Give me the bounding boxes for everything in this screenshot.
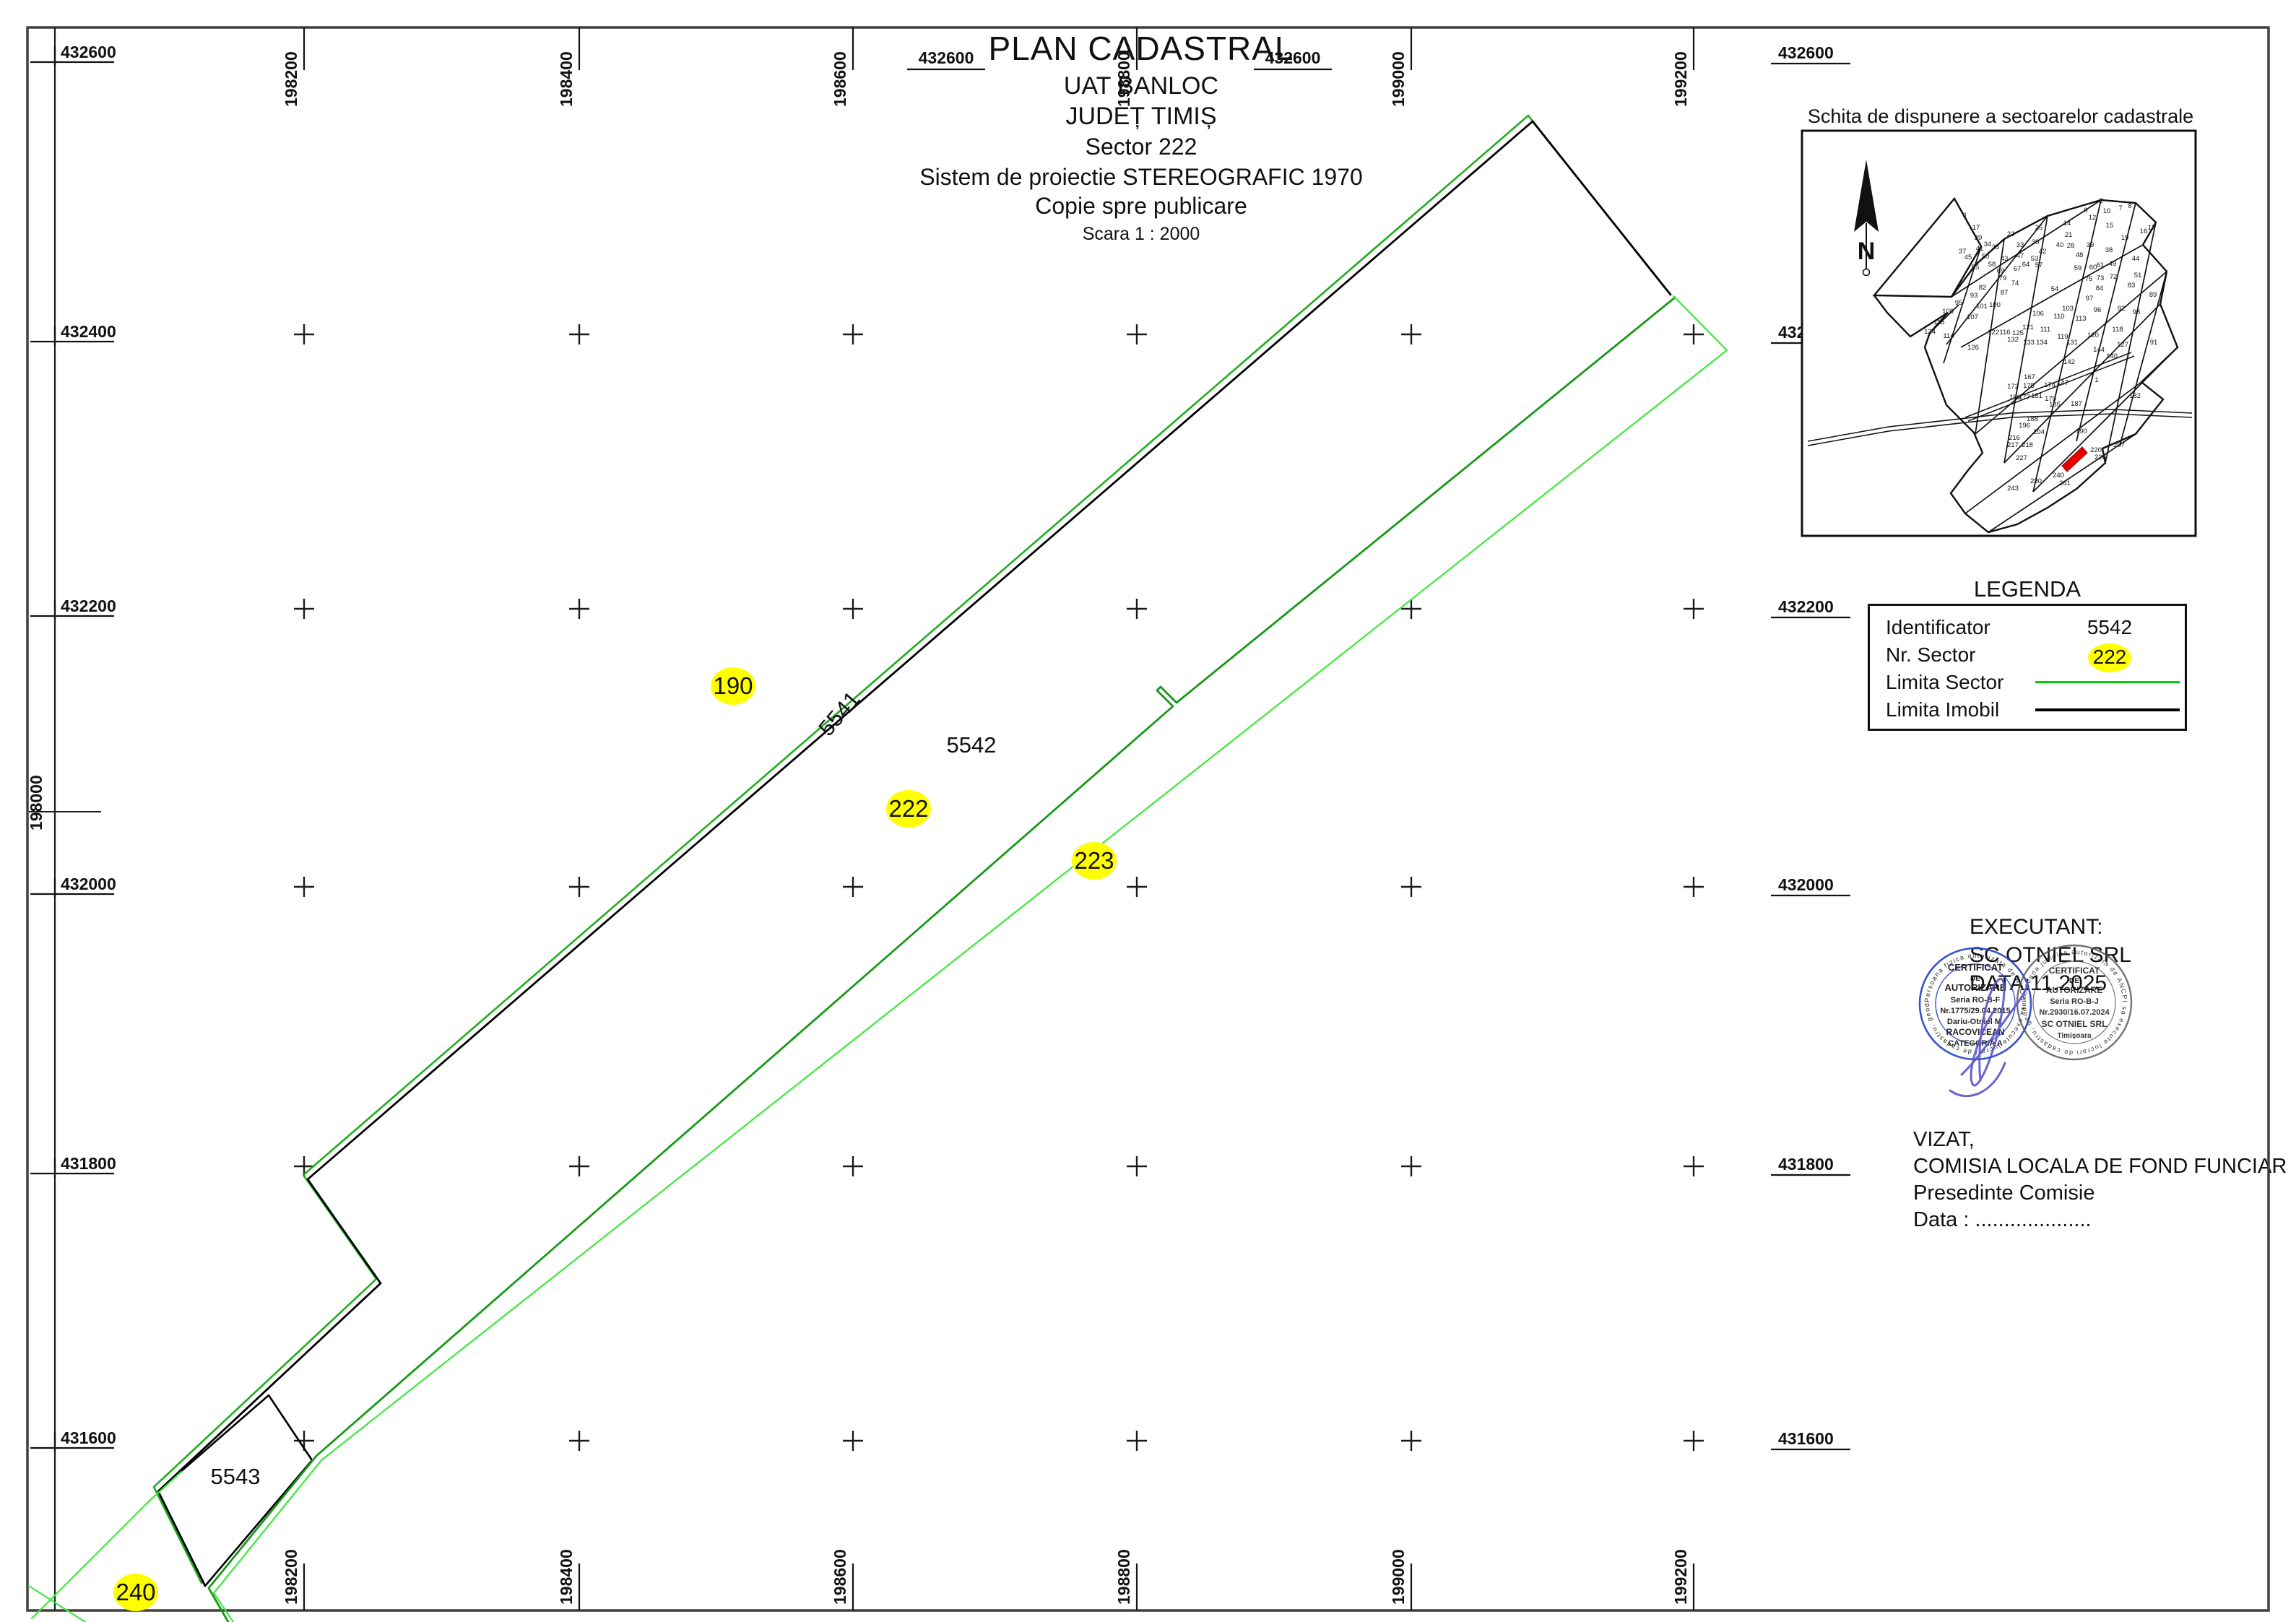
inset-parcel-number: 83 <box>2128 282 2136 290</box>
inset-parcel-number: 33 <box>2016 241 2024 249</box>
inset-parcel-number: 179 <box>2045 395 2056 403</box>
inset-highlight-sector <box>2062 447 2087 472</box>
inset-parcel-number: 216 <box>2009 434 2020 442</box>
stamp-text-line: CATEGORIA A <box>1948 1039 2002 1048</box>
sector-marker-label: 222 <box>888 795 928 822</box>
grid-label-northing-left: 432000 <box>61 875 116 893</box>
inset-parcel-number: 25 <box>2035 224 2043 232</box>
inset-parcel-number: 114 <box>1943 332 1954 340</box>
sector-marker <box>886 790 931 828</box>
inset-parcel-number: 131 <box>2066 339 2078 347</box>
inset-parcel-number: 61 <box>2097 261 2105 269</box>
inset-parcel-number: 108 <box>1942 308 1954 316</box>
sector-limit-se <box>209 298 1675 1622</box>
inset-parcel-number: 243 <box>2007 485 2019 493</box>
inset-parcel-number: 41 <box>1976 245 1984 253</box>
inset-parcel-number: 57 <box>2035 261 2043 269</box>
inset-parcel-number: 37 <box>1959 248 1967 256</box>
vizat-line3: Presedinte Comisie <box>1913 1180 2289 1207</box>
grid-label-easting-top: 198400 <box>557 51 576 107</box>
inset-parcel-number: 95 <box>1955 299 1963 307</box>
inset-parcel-number: 116 <box>1999 329 2010 337</box>
inset-parcel-number: 93 <box>1970 292 1978 300</box>
inset-parcel-number: 82 <box>1979 284 1987 292</box>
grid-label-easting-top: 199200 <box>1671 51 1690 107</box>
stamp-text-line: Timișoara <box>2057 1032 2091 1040</box>
inset-parcel-number: 204 <box>2033 428 2045 436</box>
inset-parcel-number: 98 <box>2133 308 2141 316</box>
legend-row-identificator: Identificator 5542 <box>1870 613 2185 641</box>
inset-parcel-number: 187 <box>2071 400 2082 408</box>
inset-parcel-number: 241 <box>2059 480 2071 487</box>
stamp-text-line: Seria RO-B-J <box>2050 997 2099 1006</box>
grid-label-easting-bottom: 198800 <box>1114 1549 1133 1605</box>
sector-marker <box>1072 842 1117 880</box>
page-title: PLAN CADASTRAL <box>841 30 1441 68</box>
grid-label-northing-right: 432200 <box>1778 597 1834 616</box>
inset-parcel-number: 107 <box>1967 313 1978 321</box>
legend-label: Limita Imobil <box>1886 698 1999 721</box>
inset-parcel-number: 218 <box>2022 441 2033 449</box>
parcel-boundaries <box>29 116 1727 1622</box>
grid-label-northing-left: 432600 <box>61 43 116 61</box>
inset-parcel-number: 55 <box>1972 264 1980 272</box>
vizat-block: VIZAT, COMISIA LOCALA DE FOND FUNCIAR Pr… <box>1913 1127 2289 1233</box>
sector-marker-label: 240 <box>116 1579 155 1605</box>
stamp-text-line: Nr.1775/29.04.2015 <box>1940 1007 2010 1015</box>
inset-parcel-number: 51 <box>2134 272 2142 279</box>
inset-parcel-number: 115 <box>1933 318 1944 326</box>
grid-label-northing-left: 432400 <box>61 322 116 341</box>
grid-label-easting-bottom: 198600 <box>831 1549 849 1605</box>
legend-row-limita-imobil: Limita Imobil <box>1870 695 2185 723</box>
inset-parcel-number: 207 <box>2113 441 2125 449</box>
inset-parcel-number: 177 <box>2019 394 2030 402</box>
title-judet: JUDEȚ TIMIȘ <box>841 103 1441 130</box>
inset-parcel-number: 58 <box>1988 261 1996 269</box>
inset-parcel-number: 48 <box>2076 251 2084 259</box>
inset-parcel-number: 28 <box>2067 242 2075 250</box>
inset-parcel-number: 196 <box>2019 422 2030 430</box>
title-sector: Sector 222 <box>841 134 1441 160</box>
inset-parcel-number: 49 <box>2109 260 2117 268</box>
grid-label-left-rotated: 198000 <box>27 775 46 830</box>
inset-parcel-number: 8 <box>2128 202 2131 210</box>
inset-parcel-number: 121 <box>2022 324 2034 331</box>
inset-parcel-number: 144 <box>2093 346 2105 354</box>
title-projection: Sistem de proiectie STEREOGRAFIC 1970 <box>841 165 1441 191</box>
inset-parcel-number: 227 <box>2016 454 2027 462</box>
grid-label-northing-right: 432600 <box>1778 43 1834 62</box>
inset-parcel-number: 22 <box>2007 230 2015 238</box>
inset-title: Schita de dispunere a sectoarelor cadast… <box>1791 105 2210 150</box>
inset-parcel-number: 140 <box>2106 352 2118 360</box>
inset-parcel-number: 124 <box>1924 328 1936 336</box>
inset-parcel-number: 185 <box>2049 401 2061 409</box>
inset-parcel-number: 91 <box>2150 339 2158 347</box>
stamp-text-line: Dariu-Otniel M. <box>1947 1018 2003 1026</box>
inset-parcel-number: 44 <box>2132 255 2140 263</box>
legend-label: Nr. Sector <box>1886 643 1975 667</box>
inset-parcel-number: 45 <box>1964 253 1972 261</box>
inset-parcel-number: 106 <box>2032 310 2044 318</box>
grid-label-northing-left: 431600 <box>61 1428 116 1447</box>
inset-parcel-number: 125 <box>2012 329 2024 337</box>
grid-label-northing-right: 432400 <box>1778 323 1834 342</box>
inset-parcel-number: 59 <box>2074 264 2082 272</box>
inset-parcel-number: 72 <box>2110 273 2118 281</box>
inset-parcel-number: 142 <box>2063 358 2075 366</box>
inset-parcel-number: 30 <box>2032 238 2040 246</box>
inset-parcel-number: 174 <box>2044 381 2055 389</box>
legend-title: LEGENDA <box>1868 576 2187 602</box>
imobil-limit-nw-low <box>158 1179 381 1586</box>
title-scale: Scara 1 : 2000 <box>841 224 1441 244</box>
legend-label: Identificator <box>1886 616 1990 639</box>
inset-parcel-number: 15 <box>2106 222 2114 230</box>
inset-parcel-number: 181 <box>2031 392 2042 400</box>
inset-parcel-number: 74 <box>2011 279 2019 287</box>
inset-parcel-number: 119 <box>2057 333 2068 341</box>
inset-parcel-number: 47 <box>2016 252 2024 260</box>
grid-label-northing-right: 432000 <box>1778 875 1834 894</box>
inset-parcel-number: 79 <box>1999 274 2007 282</box>
inset-parcel-number: 113 <box>2075 315 2086 323</box>
parcel-5543-outline <box>158 1395 312 1586</box>
inset-parcel-number: 19 <box>2121 234 2129 242</box>
inset-parcel-number: 101 <box>1976 303 1988 311</box>
sector-marker-label: 190 <box>713 672 753 699</box>
inset-parcel-number: 96 <box>2094 306 2102 314</box>
sector-line-sample <box>2035 681 2180 683</box>
inset-parcel-number: 188 <box>2027 415 2038 423</box>
title-block: PLAN CADASTRAL UAT BANLOC JUDEȚ TIMIȘ Se… <box>841 30 1441 244</box>
inset-parcel-number: 39 <box>2087 241 2094 249</box>
inset-parcel-number: 64 <box>2022 261 2030 269</box>
inset-parcel-number: 60 <box>2089 264 2097 272</box>
legend-value: 5542 <box>2059 616 2160 639</box>
inset-parcel-number: 147 <box>2057 379 2068 387</box>
executant-block: EXECUTANT: SC OTNIEL SRL DATA:11.2025 <box>1970 913 2273 997</box>
parcel-number-label: 5542 <box>947 732 997 758</box>
grid-label-northing-left: 432200 <box>61 597 116 615</box>
inset-parcel-number: 1 <box>2094 376 2098 384</box>
title-copy: Copie spre publicare <box>841 194 1441 220</box>
grid-label-easting-bottom: 199000 <box>1389 1549 1408 1605</box>
inset-parcel-number: 92 <box>2118 305 2126 313</box>
inset-mesh <box>1808 199 2192 532</box>
north-arrow: N <box>1854 160 1879 276</box>
sector-limit-nw <box>154 116 1666 1583</box>
sector-marker <box>113 1574 158 1611</box>
inset-parcel-number: 122 <box>1988 329 1999 337</box>
grid-label-northing-right: 431800 <box>1778 1155 1834 1174</box>
vizat-line1: VIZAT, <box>1913 1127 2289 1153</box>
inset-parcel-number: 12 <box>2089 214 2097 222</box>
inset-parcel-number: 100 <box>1989 301 2001 309</box>
legend-row-limita-sector: Limita Sector <box>1870 668 2185 695</box>
inset-parcel-number: 17 <box>1972 224 1980 232</box>
sector-limit-corner <box>29 1586 85 1622</box>
imobil-limit-nw <box>308 121 1671 1179</box>
stamp-text-line: RACOVICEAN <box>1946 1027 2005 1037</box>
inset-parcel-number: 126 <box>1967 344 1979 352</box>
inset-parcel-number: 172 <box>2007 383 2019 391</box>
inset-parcel-number: 110 <box>2053 313 2064 321</box>
inset-parcel-number: 132 <box>2007 336 2019 344</box>
inset-parcel-number: 127 <box>2117 341 2128 349</box>
title-uat: UAT BANLOC <box>841 72 1441 100</box>
inset-parcel-number: 53 <box>2031 255 2039 263</box>
grid-label-easting-bottom: 199200 <box>1671 1549 1690 1605</box>
inset-parcel-number: 89 <box>2149 291 2157 299</box>
executant-title: EXECUTANT: <box>1970 913 2273 941</box>
inset-map: N <box>1802 131 2196 536</box>
executant-date: DATA:11.2025 <box>1970 969 2273 997</box>
inset-parcel-number: 34 <box>1984 240 1992 248</box>
inset-parcel-number: 240 <box>2053 472 2064 480</box>
inset-parcel-number: 73 <box>2097 274 2105 282</box>
legend-box: Identificator 5542 Nr. Sector 222 Limita… <box>1868 604 2187 731</box>
inset-parcel-number: 50 <box>1982 253 1990 261</box>
inset-parcel-number: 217 <box>2007 441 2019 449</box>
legend-label: Limita Sector <box>1886 671 2003 694</box>
inset-parcel-number: 67 <box>2014 265 2022 273</box>
inset-parcel-number: 69 <box>1997 267 2005 275</box>
stamp-text-line: Nr.2930/16.07.2024 <box>2039 1008 2110 1017</box>
grid-label-easting-bottom: 198200 <box>282 1549 300 1605</box>
inset-parcel-number: 75 <box>2085 275 2093 283</box>
inset-parcel-number: 38 <box>2105 246 2113 254</box>
inset-parcel-number: 133 <box>2023 339 2035 347</box>
legend-row-sector: Nr. Sector 222 <box>1870 641 2185 668</box>
inset-parcel-number: 10 <box>2103 207 2111 215</box>
sector-limit-240 <box>32 1472 181 1618</box>
inset-parcel-number: 42 <box>2039 248 2047 256</box>
inset-parcel-number: 230 <box>2030 477 2042 485</box>
inset-parcel-number: 134 <box>2036 339 2048 347</box>
grid-label-easting-top: 198200 <box>282 51 300 107</box>
inset-parcel-number: 14 <box>2063 220 2071 227</box>
inset-parcel-number: 6 <box>1962 212 1966 220</box>
stamp-text-line: SC OTNIEL SRL <box>2041 1019 2107 1029</box>
grid-label-easting-bottom: 198400 <box>557 1549 576 1605</box>
inset-parcel-number: 29 <box>1975 234 1983 242</box>
inset-parcel-number: 40 <box>2056 241 2064 249</box>
inset-parcel-number: 118 <box>2112 326 2123 334</box>
imobil-line-sample <box>2035 708 2180 711</box>
inset-parcel-number: 16 <box>2140 227 2148 235</box>
sector-marker-label: 223 <box>1074 847 1114 874</box>
inset-parcel-number: 220 <box>2090 446 2102 454</box>
vizat-line2: COMISIA LOCALA DE FOND FUNCIAR <box>1913 1153 2289 1180</box>
inset-parcel-number: 180 <box>2009 394 2021 402</box>
inset-parcel-number: 226 <box>2094 454 2106 461</box>
grid-label-northing-right: 431600 <box>1778 1429 1834 1448</box>
inset-parcel-number: 182 <box>2129 392 2141 400</box>
page-border <box>27 27 2269 1610</box>
inset-parcel-number: 43 <box>2001 255 2009 263</box>
inset-parcel-number: 111 <box>2040 326 2050 334</box>
inset-parcel-number: 54 <box>2051 285 2059 293</box>
inset-parcel-number: 84 <box>2096 285 2104 292</box>
inset-parcel-number: 87 <box>2001 289 2009 297</box>
inset-parcel-number: 175 <box>2023 382 2035 390</box>
inset-parcel-number: 2 <box>2099 197 2102 205</box>
cadastral-plan-page: PLAN CADASTRAL UAT BANLOC JUDEȚ TIMIȘ Se… <box>0 0 2296 1622</box>
inset-parcel-number: 7 <box>2118 204 2122 212</box>
coordinate-grid: 1982001982001984001984001986001986001988… <box>27 27 1850 1610</box>
vizat-line4: Data : .................... <box>1913 1207 2289 1233</box>
inset-parcel-number: 167 <box>2024 373 2035 381</box>
inset-parcel-number: 21 <box>2065 231 2073 239</box>
parcel-number-label: 5543 <box>211 1464 261 1489</box>
inset-parcel-number: 9 <box>2084 207 2087 214</box>
inset-parcel-number: 13 <box>2148 224 2156 232</box>
inset-parcel-number: 35 <box>1992 243 2000 251</box>
parcel-number-label: 5541 <box>813 687 865 741</box>
inset-parcel-number: 103 <box>2062 305 2074 313</box>
executant-name: SC OTNIEL SRL <box>1970 941 2273 969</box>
north-label: N <box>1858 238 1876 265</box>
inset-parcel-number: 190 <box>2076 428 2087 435</box>
inset-parcel-numbers: 1267891012131415161719212225282930333435… <box>1924 197 2157 493</box>
grid-label-northing-left: 431800 <box>61 1154 116 1173</box>
inset-parcel-number: 97 <box>2086 295 2094 303</box>
sector-marker <box>711 667 755 705</box>
inset-parcel-number: 120 <box>2087 331 2099 339</box>
parcel-labels: 554155425543190222223240 <box>113 667 1117 1611</box>
sector-limit-se-light <box>214 296 1727 1622</box>
